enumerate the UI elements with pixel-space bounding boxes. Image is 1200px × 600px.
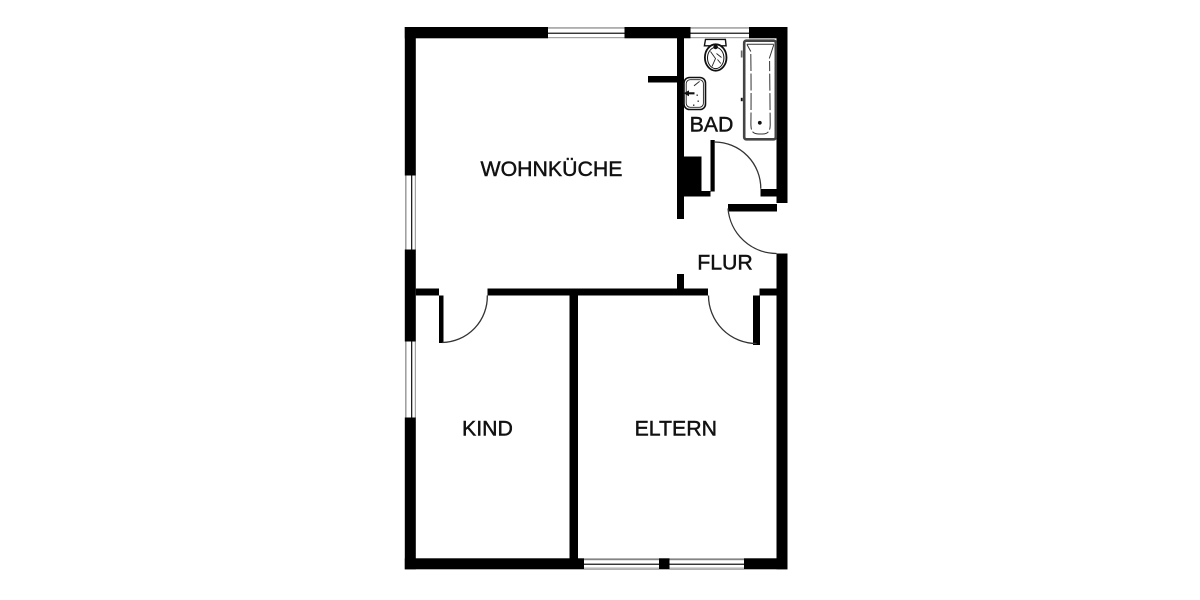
svg-text:WOHNKÜCHE: WOHNKÜCHE xyxy=(481,157,623,181)
svg-text:ELTERN: ELTERN xyxy=(635,416,717,440)
svg-text:KIND: KIND xyxy=(462,416,513,440)
svg-text:FLUR: FLUR xyxy=(697,251,753,275)
svg-text:BAD: BAD xyxy=(690,113,734,137)
